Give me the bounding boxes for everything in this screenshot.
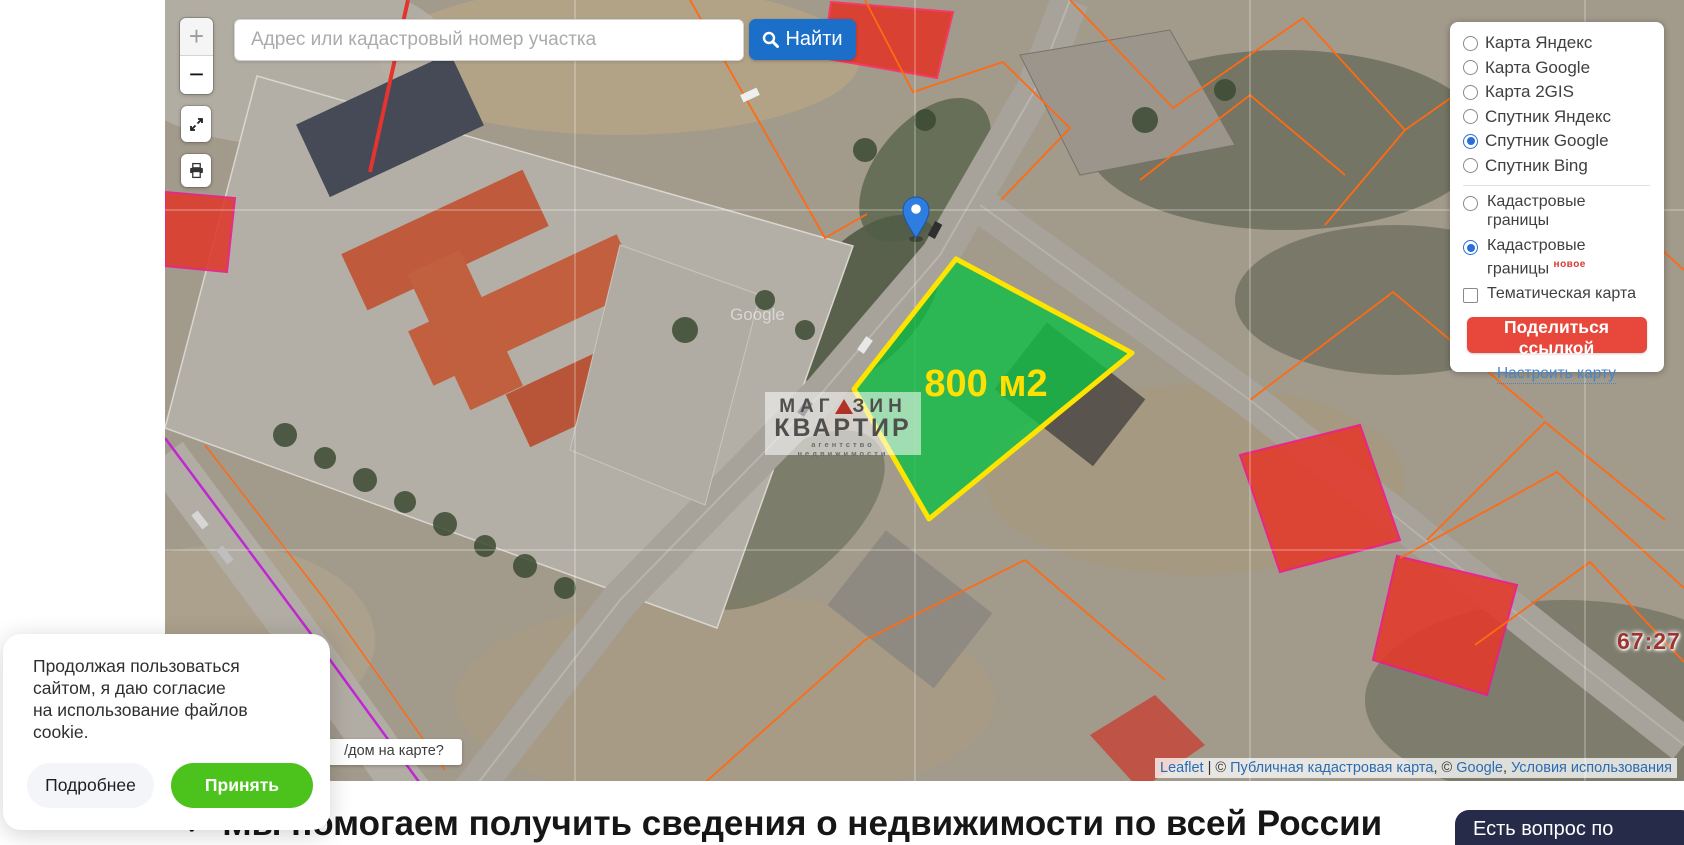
- checkbox-icon[interactable]: [1463, 288, 1478, 303]
- radio-selected-icon[interactable]: [1463, 240, 1478, 255]
- radio-icon[interactable]: [1463, 36, 1478, 51]
- layer-option-karta-yandex[interactable]: Карта Яндекс: [1463, 31, 1650, 56]
- cookie-text: Продолжая пользоваться: [33, 655, 330, 677]
- printer-icon: [188, 162, 205, 179]
- leaflet-link[interactable]: Leaflet: [1160, 760, 1204, 776]
- map-attribution: Leaflet | © Публичная кадастровая карта,…: [1155, 758, 1677, 778]
- page: 800 м2 МАГЗИН КВАРТИР агентство недвижим…: [0, 0, 1684, 845]
- search-input[interactable]: [234, 19, 744, 61]
- terms-link[interactable]: Условия использования: [1511, 760, 1672, 776]
- layer-option-karta-2gis[interactable]: Карта 2GIS: [1463, 80, 1650, 105]
- radio-selected-icon[interactable]: [1463, 134, 1478, 149]
- agency-watermark: МАГЗИН КВАРТИР агентство недвижимости: [765, 392, 921, 455]
- print-button[interactable]: [181, 154, 211, 187]
- google-imagery-watermark: Google: [730, 305, 785, 325]
- configure-map-link[interactable]: Настроить карту: [1463, 365, 1650, 383]
- layer-option-sputnik-bing[interactable]: Спутник Bing: [1463, 154, 1650, 179]
- new-badge: новое: [1554, 259, 1586, 270]
- layers-panel: Карта Яндекс Карта Google Карта 2GIS Спу…: [1450, 22, 1664, 372]
- overlay-option-cadastral-borders-new[interactable]: Кадастровые границы новое: [1463, 237, 1650, 278]
- cookie-accept-button[interactable]: Принять: [171, 763, 313, 808]
- cookie-text: на использование файлов: [33, 699, 330, 721]
- radio-icon[interactable]: [1463, 85, 1478, 100]
- radio-icon[interactable]: [1463, 196, 1478, 211]
- expand-arrows-icon: [188, 116, 205, 133]
- panel-divider: [1463, 185, 1650, 186]
- chat-question-button[interactable]: Есть вопрос по недвижи: [1455, 810, 1684, 845]
- page-headline: ✓Мы помогаем получить сведения о недвижи…: [183, 804, 1382, 844]
- layer-option-karta-google[interactable]: Карта Google: [1463, 56, 1650, 81]
- zoom-control: + −: [180, 18, 213, 94]
- magnifier-icon: [762, 31, 779, 48]
- cookie-banner: Продолжая пользоваться сайтом, я даю сог…: [3, 634, 330, 830]
- zoom-in-button[interactable]: +: [180, 18, 213, 56]
- radio-icon[interactable]: [1463, 109, 1478, 124]
- share-link-button[interactable]: Поделиться ссылкой: [1467, 317, 1647, 353]
- cookie-more-button[interactable]: Подробнее: [27, 763, 154, 808]
- zoom-out-button[interactable]: −: [180, 56, 213, 94]
- overlay-option-cadastral-borders[interactable]: Кадастровые границы: [1463, 193, 1650, 230]
- map-object-tooltip[interactable]: /дом на карте?: [326, 739, 462, 765]
- fullscreen-button[interactable]: [181, 106, 211, 142]
- google-link[interactable]: Google: [1456, 760, 1503, 776]
- parcel-area-label: 800 м2: [924, 363, 1047, 405]
- radio-icon[interactable]: [1463, 158, 1478, 173]
- layer-option-sputnik-google[interactable]: Спутник Google: [1463, 129, 1650, 154]
- overlay-option-thematic-map[interactable]: Тематическая карта: [1463, 285, 1650, 304]
- house-triangle-icon: [835, 399, 853, 414]
- pkk-link[interactable]: Публичная кадастровая карта: [1230, 760, 1433, 776]
- cookie-text: сайтом, я даю согласие: [33, 677, 330, 699]
- cadastral-district-label: 67:27: [1617, 628, 1681, 655]
- find-button[interactable]: Найти: [749, 19, 856, 60]
- layer-option-sputnik-yandex[interactable]: Спутник Яндекс: [1463, 105, 1650, 130]
- cookie-text: cookie.: [33, 721, 330, 743]
- radio-icon[interactable]: [1463, 60, 1478, 75]
